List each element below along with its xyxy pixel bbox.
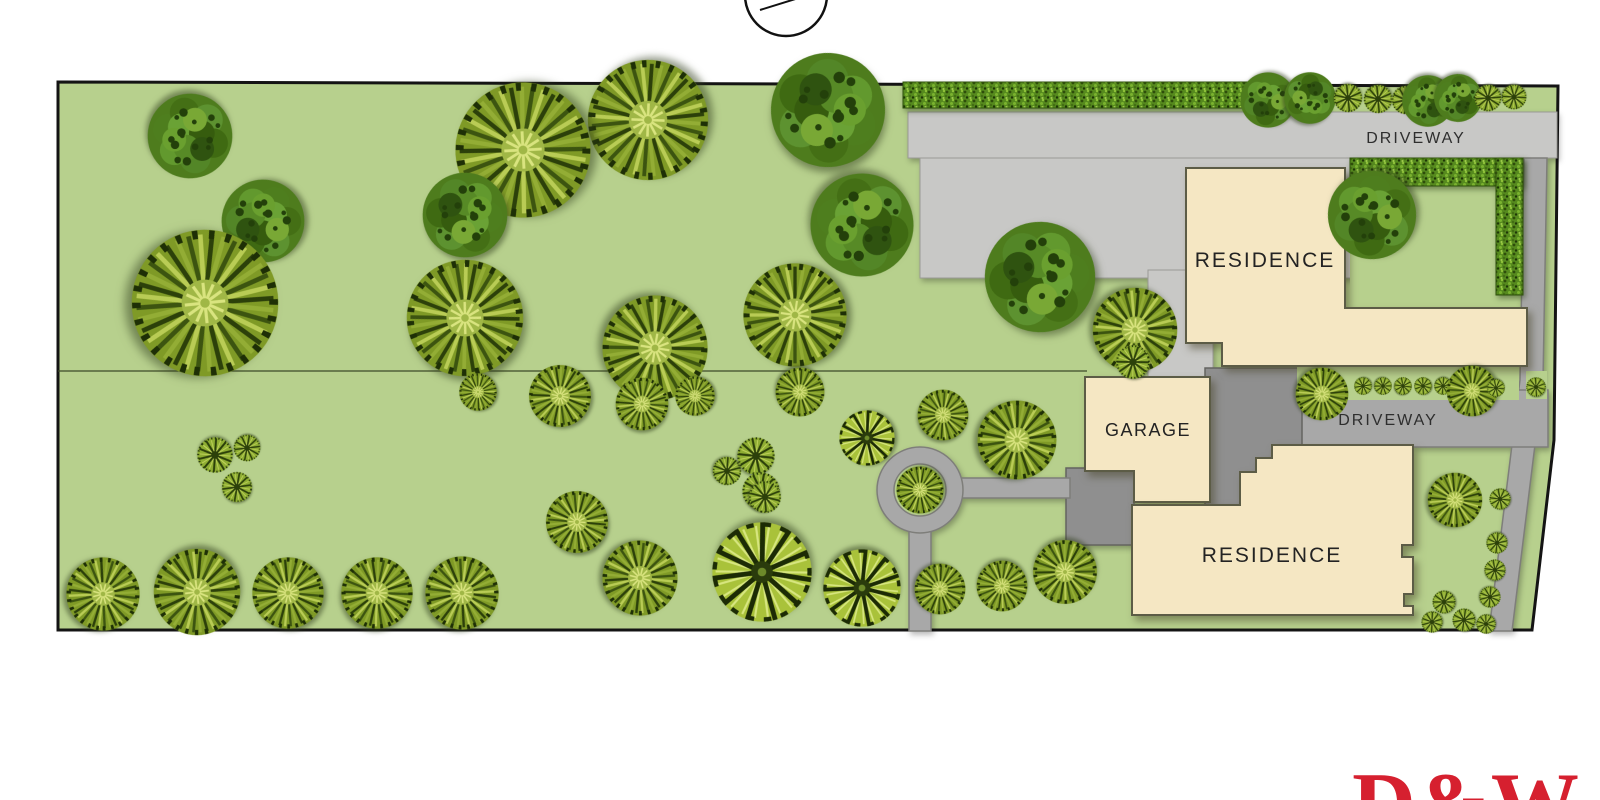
hedge-north xyxy=(903,82,1278,108)
north-indicator xyxy=(745,0,827,36)
turnaround-spur xyxy=(955,478,1070,498)
north-circle xyxy=(745,0,827,36)
hedge-garden-right xyxy=(1496,158,1523,295)
tree-spoke xyxy=(897,467,944,514)
driveway-1-label: DRIVEWAY xyxy=(1366,130,1466,147)
garage-label: GARAGE xyxy=(1105,420,1191,440)
residence-2-label: RESIDENCE xyxy=(1202,544,1343,567)
driveway-2-label: DRIVEWAY xyxy=(1338,412,1438,429)
site-plan-page: DRIVEWAY RESIDENCE DRIVEWAY GARAGE RESID… xyxy=(0,0,1600,800)
logo-text: D&W xyxy=(1352,756,1580,800)
site-plan: DRIVEWAY RESIDENCE DRIVEWAY GARAGE RESID… xyxy=(58,41,1558,653)
site-plan-canvas: DRIVEWAY RESIDENCE DRIVEWAY GARAGE RESID… xyxy=(0,0,1600,800)
residence-1-label: RESIDENCE xyxy=(1195,249,1336,272)
entry-walk xyxy=(1066,468,1134,545)
